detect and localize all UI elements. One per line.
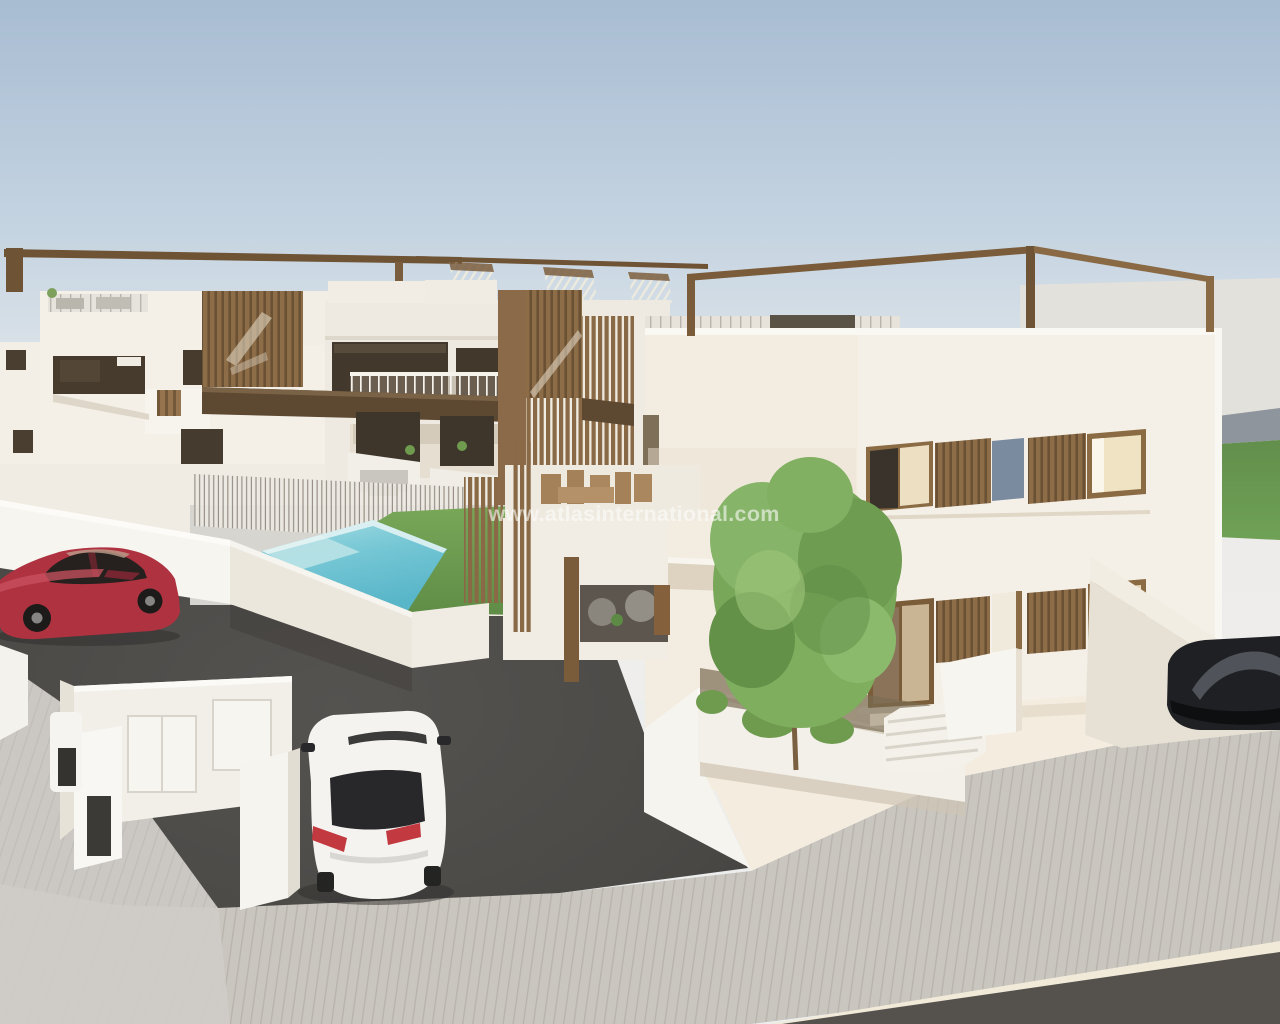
svg-text:www.atlasinternational.com: www.atlasinternational.com (487, 502, 779, 526)
